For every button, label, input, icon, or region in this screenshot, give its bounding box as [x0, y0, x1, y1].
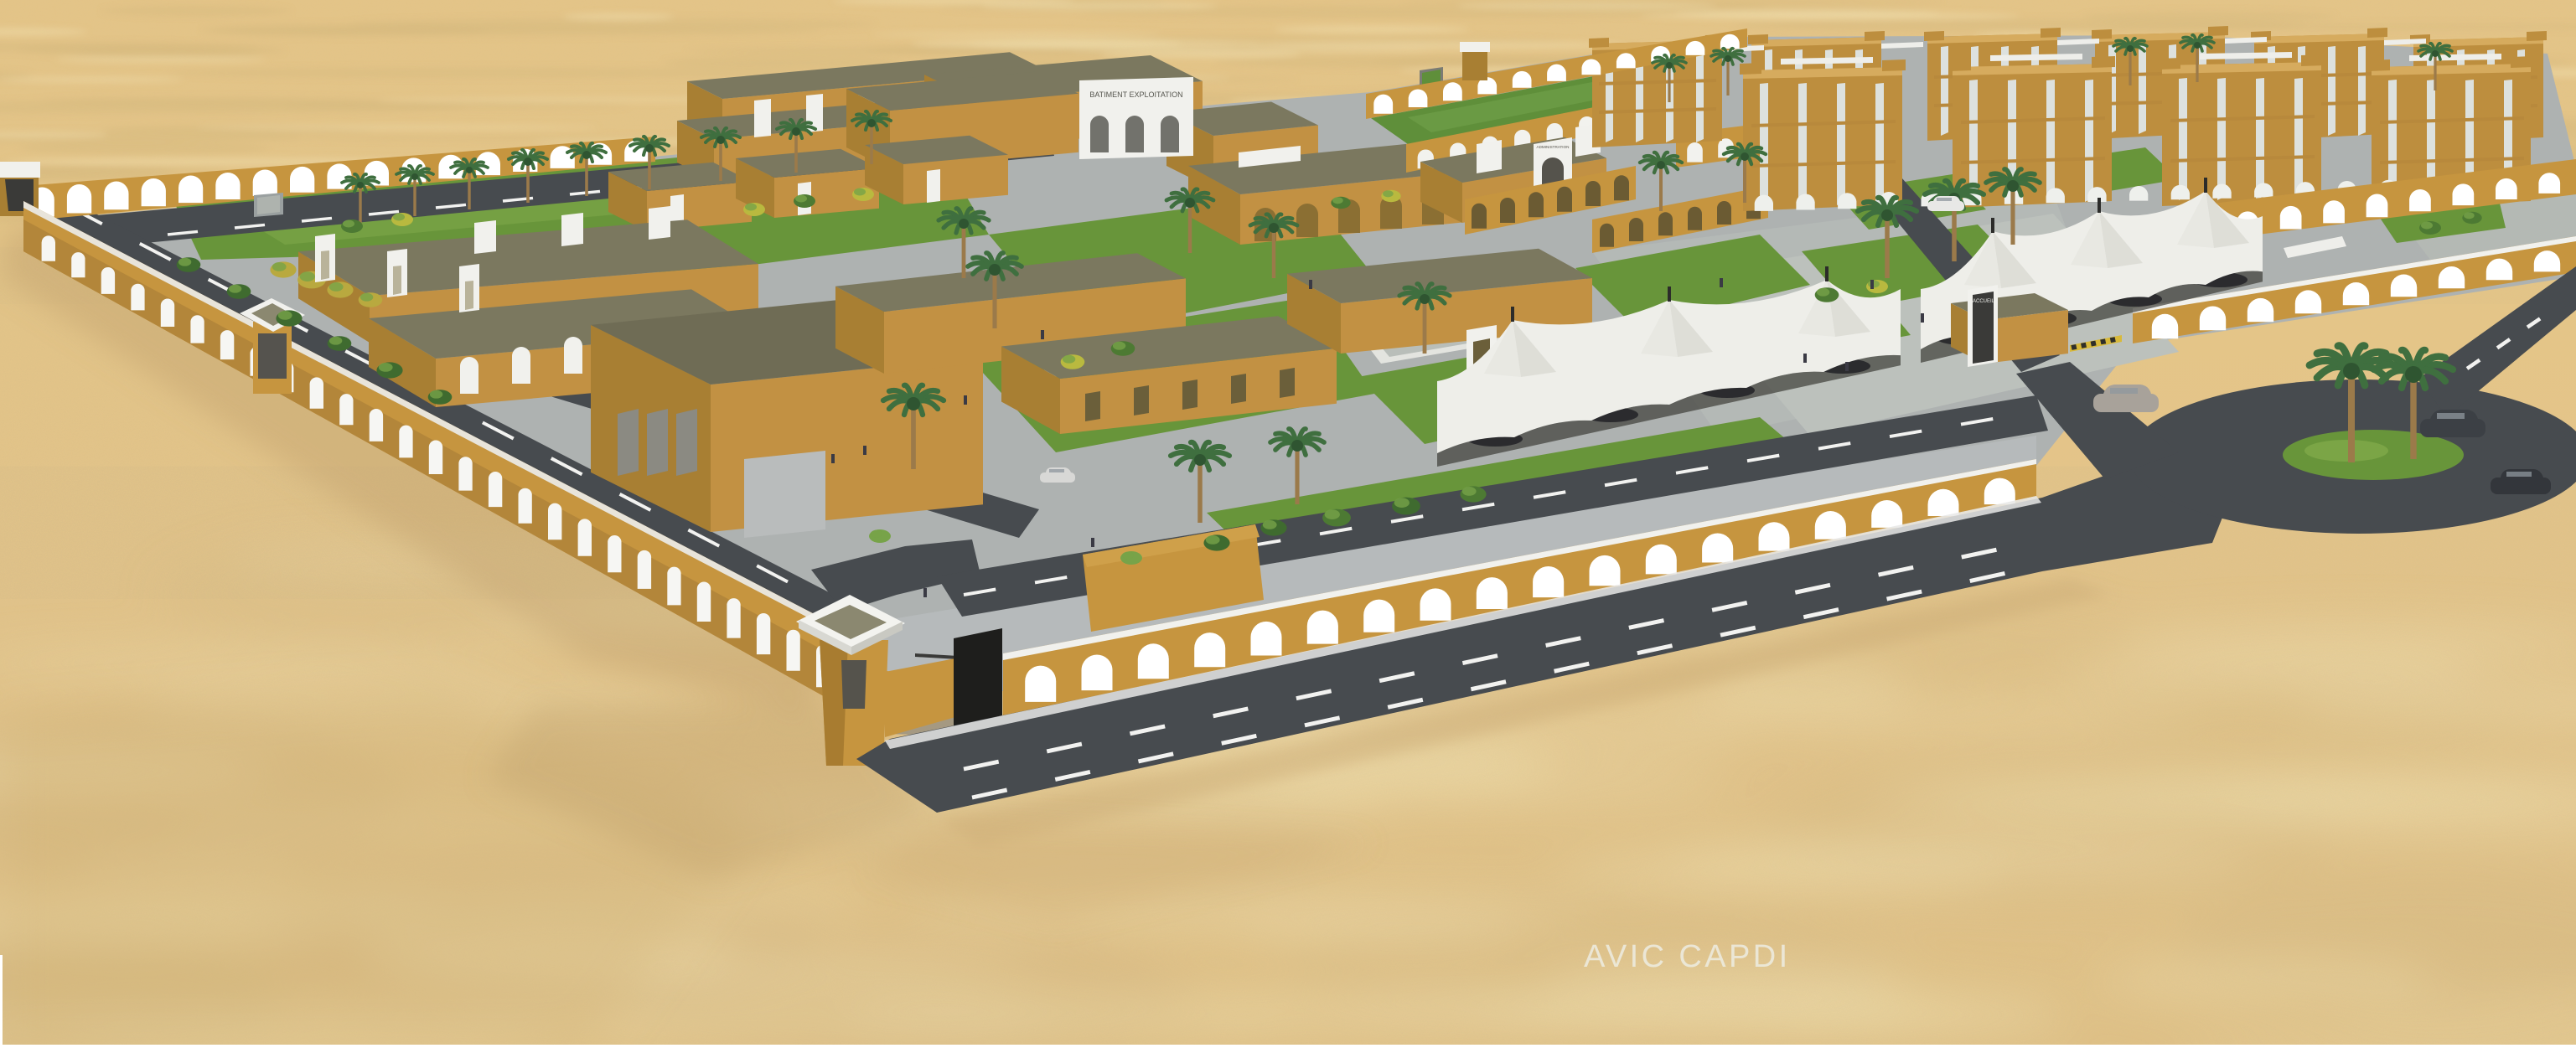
- svg-text:AVIC CAPDI: AVIC CAPDI: [1584, 939, 1791, 974]
- svg-text:ADMINISTRATION: ADMINISTRATION: [1537, 145, 1570, 149]
- svg-text:BATIMENT EXPLOITATION: BATIMENT EXPLOITATION: [1089, 90, 1182, 99]
- svg-text:ACCUEIL: ACCUEIL: [1973, 299, 1995, 304]
